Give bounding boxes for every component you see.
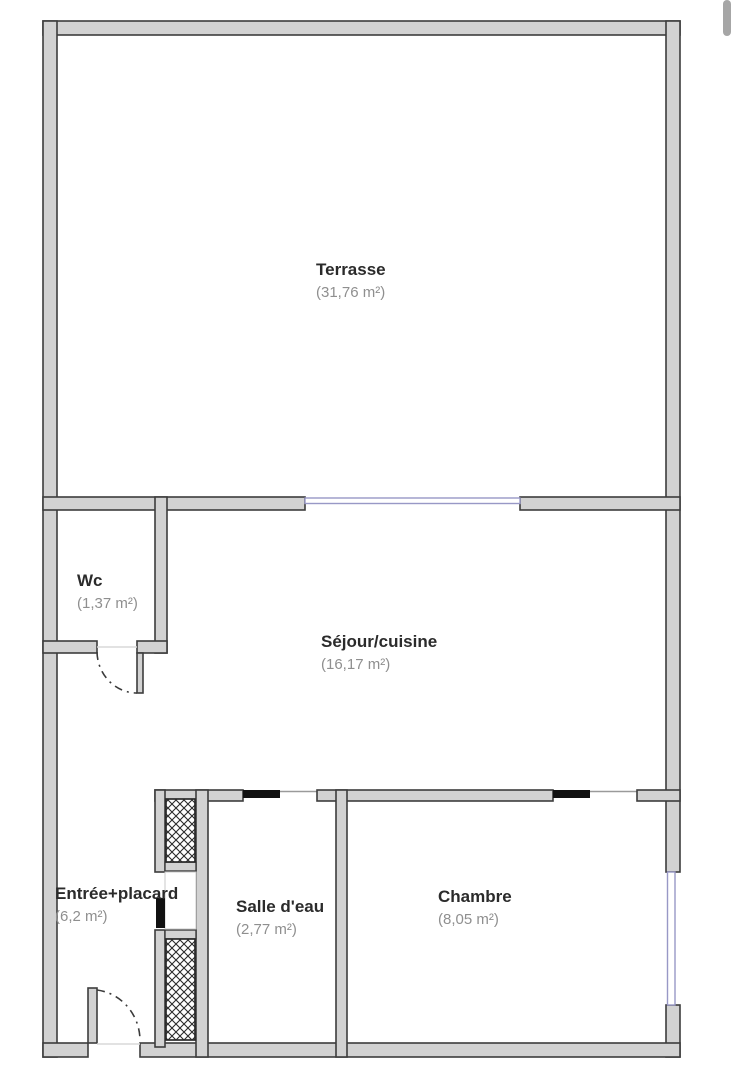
room-label-terrasse: Terrasse (31,76 m²) <box>316 259 386 303</box>
divider-wall-left-segment <box>43 497 305 510</box>
room-name: Entrée+placard <box>55 883 178 904</box>
wc-door-swing-arc <box>97 652 137 693</box>
wall-top <box>43 21 680 35</box>
salle-eau-door-panel <box>243 790 280 798</box>
wc-bottom-wall-right <box>137 641 167 653</box>
terrasse-window <box>305 498 520 504</box>
wc-right-wall <box>155 497 167 653</box>
strip-left-wall-lower <box>155 930 165 1047</box>
room-label-entree-placard: Entrée+placard (6,2 m²) <box>55 883 178 927</box>
room-label-sejour-cuisine: Séjour/cuisine (16,17 m²) <box>321 631 437 675</box>
wall-bottom-main <box>140 1043 680 1057</box>
room-name: Terrasse <box>316 259 386 280</box>
room-label-chambre: Chambre (8,05 m²) <box>438 886 512 930</box>
room-name: Salle d'eau <box>236 896 324 917</box>
chambre-door-panel <box>553 790 590 798</box>
terrasse-divider-wall <box>43 497 680 510</box>
room-label-wc: Wc (1,37 m²) <box>77 570 138 614</box>
salle-eau-right-wall <box>336 790 347 1057</box>
wc-bottom-wall-left <box>43 641 97 653</box>
scrollbar-thumb[interactable] <box>723 0 731 36</box>
room-label-salle-eau: Salle d'eau (2,77 m²) <box>236 896 324 940</box>
room-area: (16,17 m²) <box>321 654 437 675</box>
strip-left-wall-upper <box>155 790 165 872</box>
closet-hatch-lower <box>166 939 195 1040</box>
room-area: (31,76 m²) <box>316 282 386 303</box>
lower-divider-wall <box>155 790 680 801</box>
wall-bottom-left <box>43 1043 88 1057</box>
entrance-door-leaf <box>88 988 97 1043</box>
room-area: (8,05 m²) <box>438 909 512 930</box>
wall-right-upper <box>666 21 680 872</box>
room-name: Wc <box>77 570 138 591</box>
floor-plan-page: Terrasse (31,76 m²) Wc (1,37 m²) Séjour/… <box>0 0 735 1080</box>
divider-wall-right-segment <box>520 497 680 510</box>
wc-door-leaf <box>137 653 143 693</box>
room-area: (6,2 m²) <box>55 906 178 927</box>
lower-wall-segment-2 <box>317 790 553 801</box>
strip-band-upper <box>165 862 196 871</box>
entrance-door <box>88 988 140 1044</box>
room-name: Chambre <box>438 886 512 907</box>
lower-wall-segment-3 <box>637 790 680 801</box>
room-area: (1,37 m²) <box>77 593 138 614</box>
room-name: Séjour/cuisine <box>321 631 437 652</box>
entrance-door-swing-arc <box>97 990 140 1041</box>
strip-right-wall <box>196 790 208 1057</box>
strip-band-lower <box>165 930 196 939</box>
chambre-window <box>668 872 676 1005</box>
closet-hatch-upper <box>166 799 195 862</box>
room-area: (2,77 m²) <box>236 919 324 940</box>
